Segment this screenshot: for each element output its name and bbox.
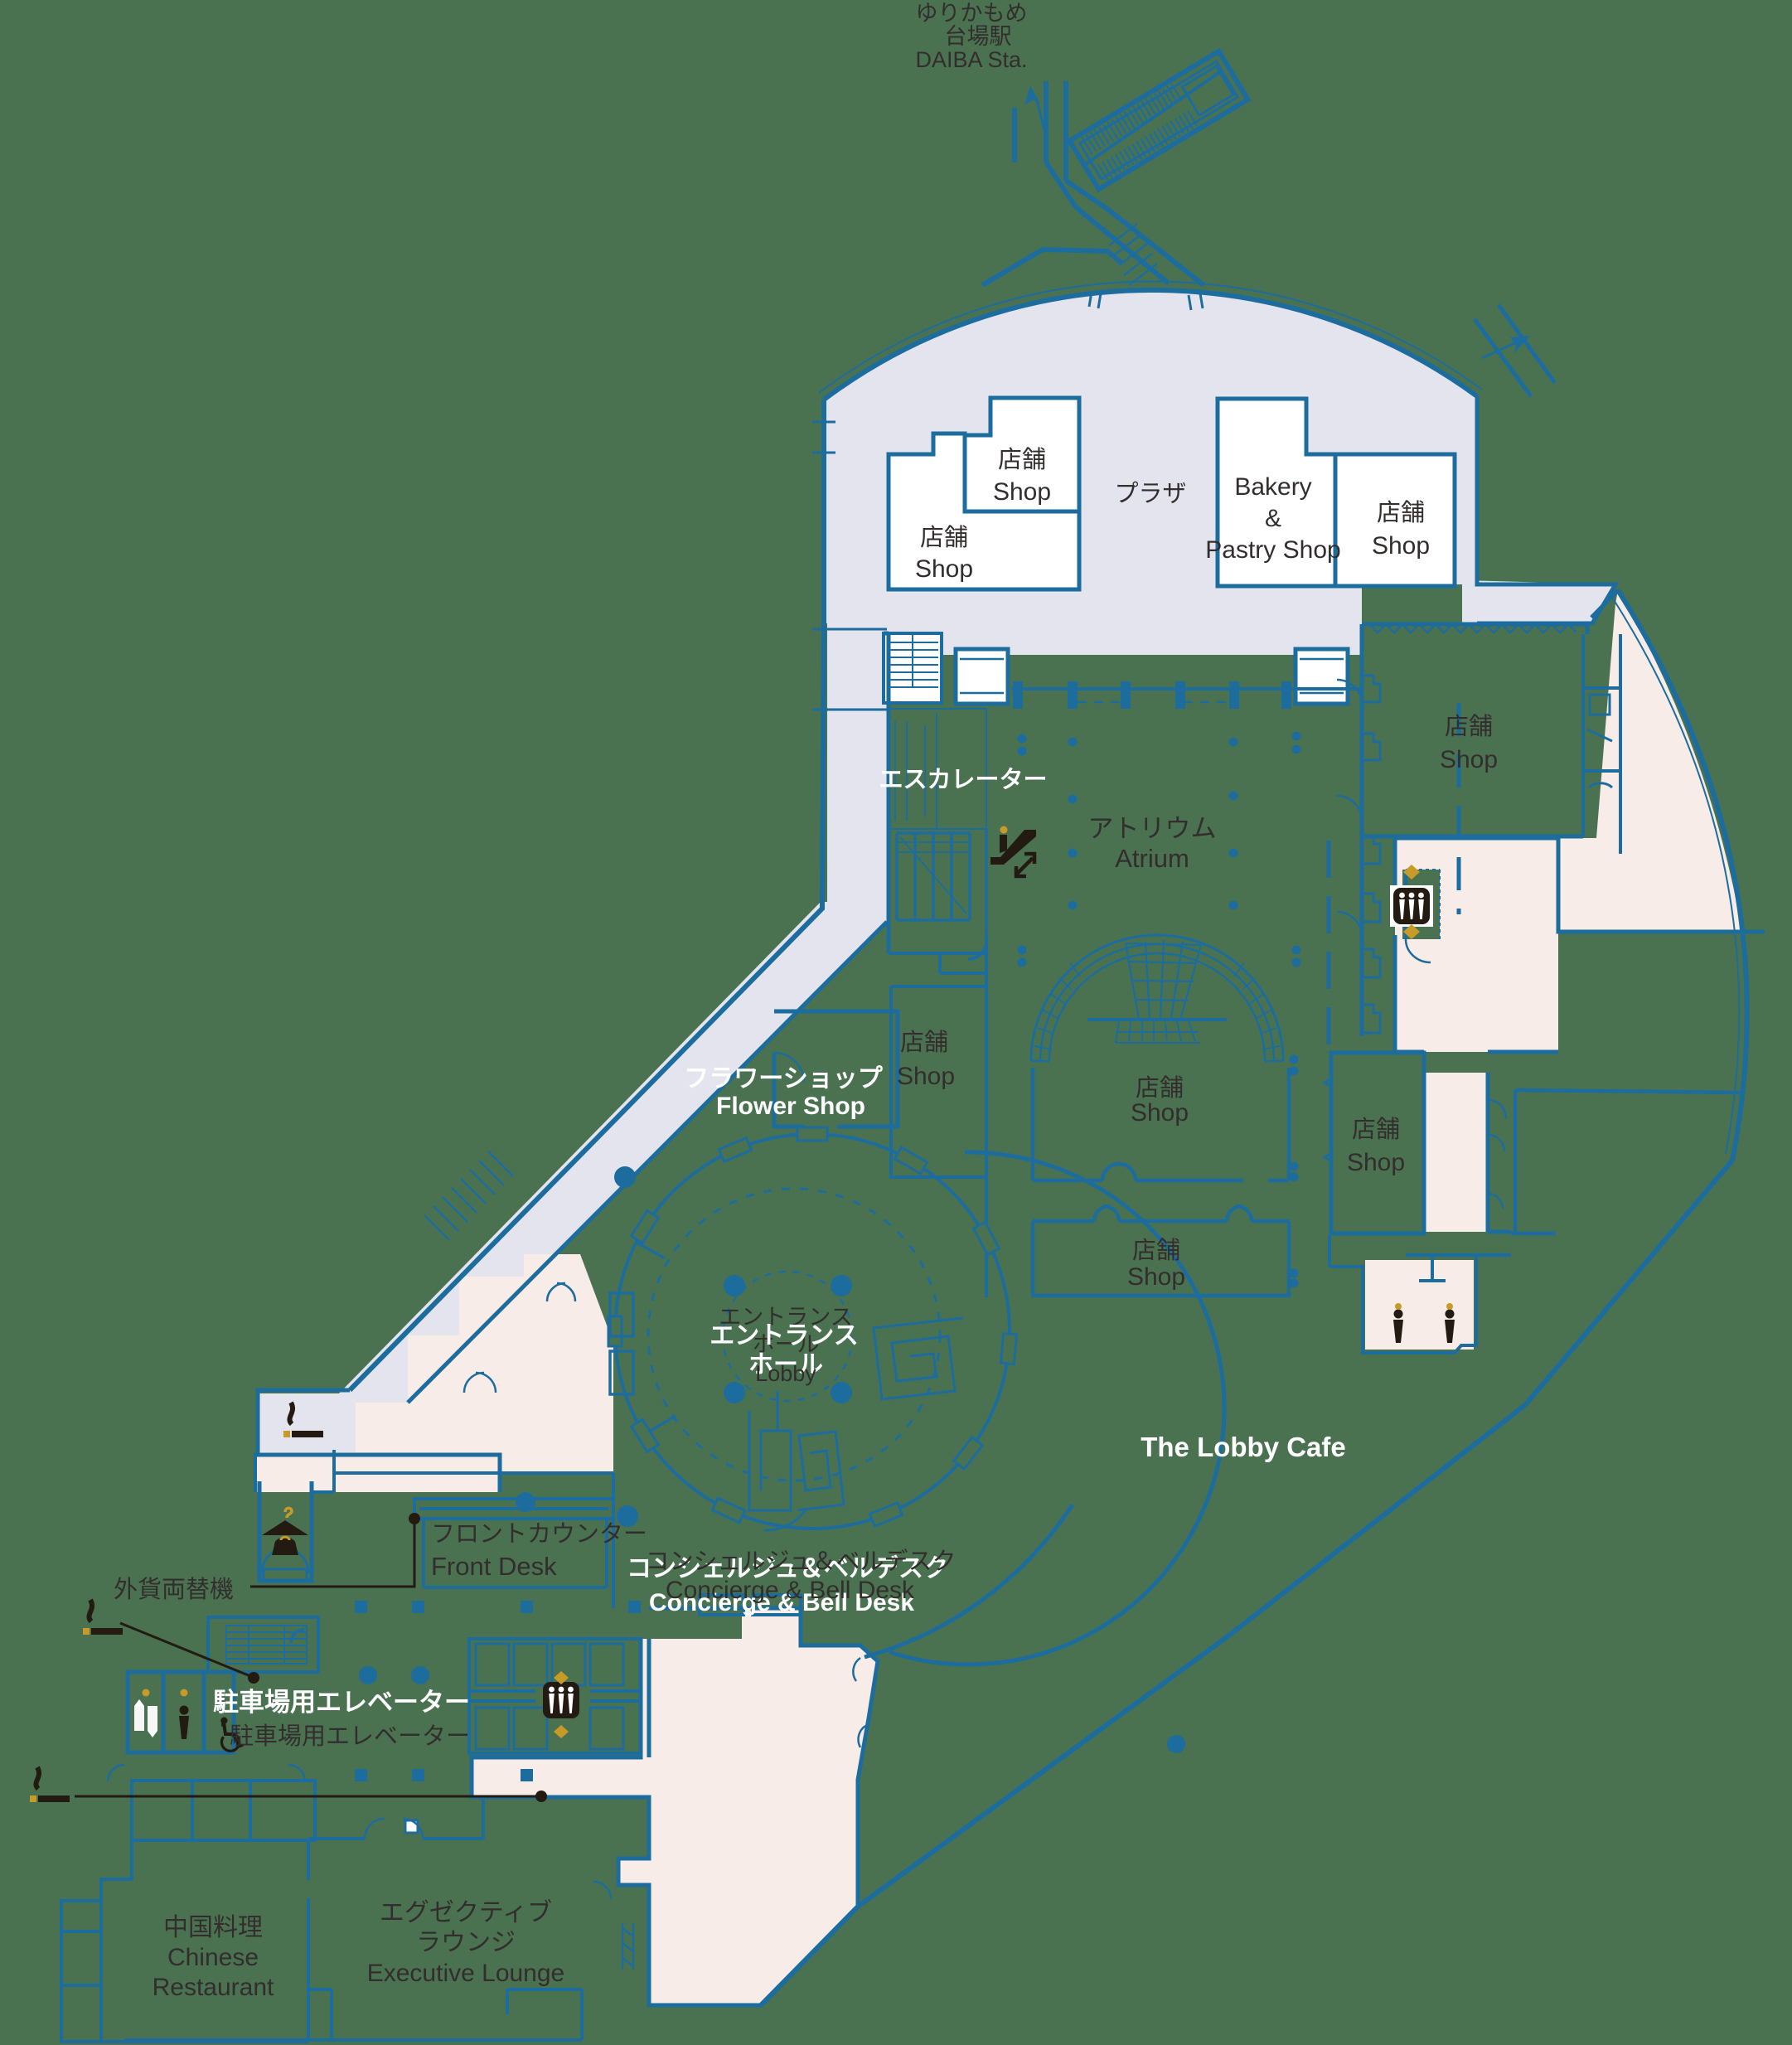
svg-text:プラザ: プラザ — [1114, 481, 1186, 507]
svg-text:店舗: 店舗 — [920, 524, 968, 551]
svg-text:店舗: 店舗 — [900, 1029, 948, 1056]
svg-text:Flower Shop: Flower Shop — [716, 1093, 865, 1120]
svg-text:Atrium: Atrium — [1115, 844, 1189, 873]
svg-text:フロントカウンター: フロントカウンター — [431, 1521, 647, 1548]
svg-text:Shop: Shop — [993, 478, 1051, 506]
svg-text:&: & — [1265, 505, 1281, 532]
svg-text:Restaurant: Restaurant — [153, 1974, 274, 2001]
svg-text:外貨両替機: 外貨両替機 — [114, 1576, 234, 1603]
svg-text:Shop: Shop — [1347, 1149, 1405, 1176]
svg-text:Shop: Shop — [1127, 1263, 1185, 1291]
svg-text:ラウンジ: ラウンジ — [416, 1929, 516, 1956]
svg-text:Front Desk: Front Desk — [431, 1552, 557, 1581]
svg-text:Bakery: Bakery — [1234, 473, 1311, 501]
svg-text:駐車場用エレベーター: 駐車場用エレベーター — [230, 1723, 470, 1750]
svg-text:コンシェルジュ＆ベルデスク: コンシェルジュ＆ベルデスク — [646, 1548, 957, 1575]
svg-text:フラワーショップ: フラワーショップ — [684, 1065, 883, 1093]
svg-text:中国料理: 中国料理 — [163, 1914, 263, 1941]
svg-text:Chinese: Chinese — [167, 1944, 259, 1971]
svg-text:Shop: Shop — [1440, 746, 1498, 773]
svg-text:台場駅: 台場駅 — [945, 24, 1012, 49]
svg-text:店舗: 店舗 — [1136, 1074, 1184, 1102]
svg-text:店舗: 店舗 — [1377, 499, 1425, 526]
svg-text:Shop: Shop — [1372, 532, 1430, 560]
svg-text:Shop: Shop — [1131, 1099, 1189, 1127]
svg-text:The Lobby Cafe: The Lobby Cafe — [1141, 1432, 1346, 1462]
svg-text:Shop: Shop — [897, 1063, 955, 1090]
svg-text:ゆりかもめ: ゆりかもめ — [916, 1, 1028, 26]
svg-text:Shop: Shop — [915, 555, 973, 583]
svg-text:エスカレーター: エスカレーター — [879, 766, 1047, 793]
svg-text:店舗: 店舗 — [1132, 1237, 1180, 1264]
svg-text:Executive Lounge: Executive Lounge — [367, 1960, 565, 1987]
svg-text:店舗: 店舗 — [998, 446, 1046, 473]
svg-text:Pastry Shop: Pastry Shop — [1205, 536, 1340, 564]
svg-text:店舗: 店舗 — [1352, 1116, 1400, 1143]
svg-text:DAIBA Sta.: DAIBA Sta. — [915, 47, 1027, 72]
svg-text:アトリウム: アトリウム — [1088, 814, 1217, 843]
svg-text:店舗: 店舗 — [1445, 713, 1493, 740]
svg-text:Lobby: Lobby — [755, 1361, 816, 1386]
svg-text:Concierge & Bell Desk: Concierge & Bell Desk — [666, 1577, 915, 1604]
svg-text:駐車場用エレベーター: 駐車場用エレベーター — [213, 1688, 470, 1717]
svg-text:エグゼクティブ: エグゼクティブ — [380, 1899, 552, 1926]
svg-text:エントランス: エントランス — [710, 1322, 858, 1350]
